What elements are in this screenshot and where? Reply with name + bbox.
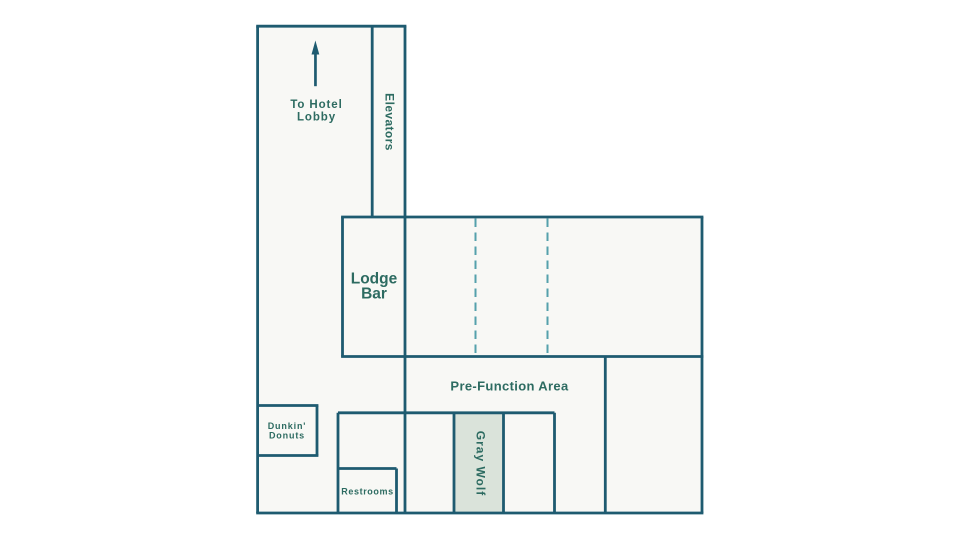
svg-text:Pre-Function Area: Pre-Function Area bbox=[450, 379, 569, 394]
svg-text:Restrooms: Restrooms bbox=[341, 487, 393, 497]
svg-text:Donuts: Donuts bbox=[269, 431, 305, 441]
svg-text:To Hotel: To Hotel bbox=[290, 99, 342, 111]
svg-text:Bar: Bar bbox=[361, 286, 387, 303]
svg-text:Elevators: Elevators bbox=[383, 93, 397, 151]
svg-text:Lobby: Lobby bbox=[297, 112, 336, 124]
svg-text:Dunkin': Dunkin' bbox=[268, 421, 307, 431]
svg-text:Gray Wolf: Gray Wolf bbox=[474, 431, 488, 496]
